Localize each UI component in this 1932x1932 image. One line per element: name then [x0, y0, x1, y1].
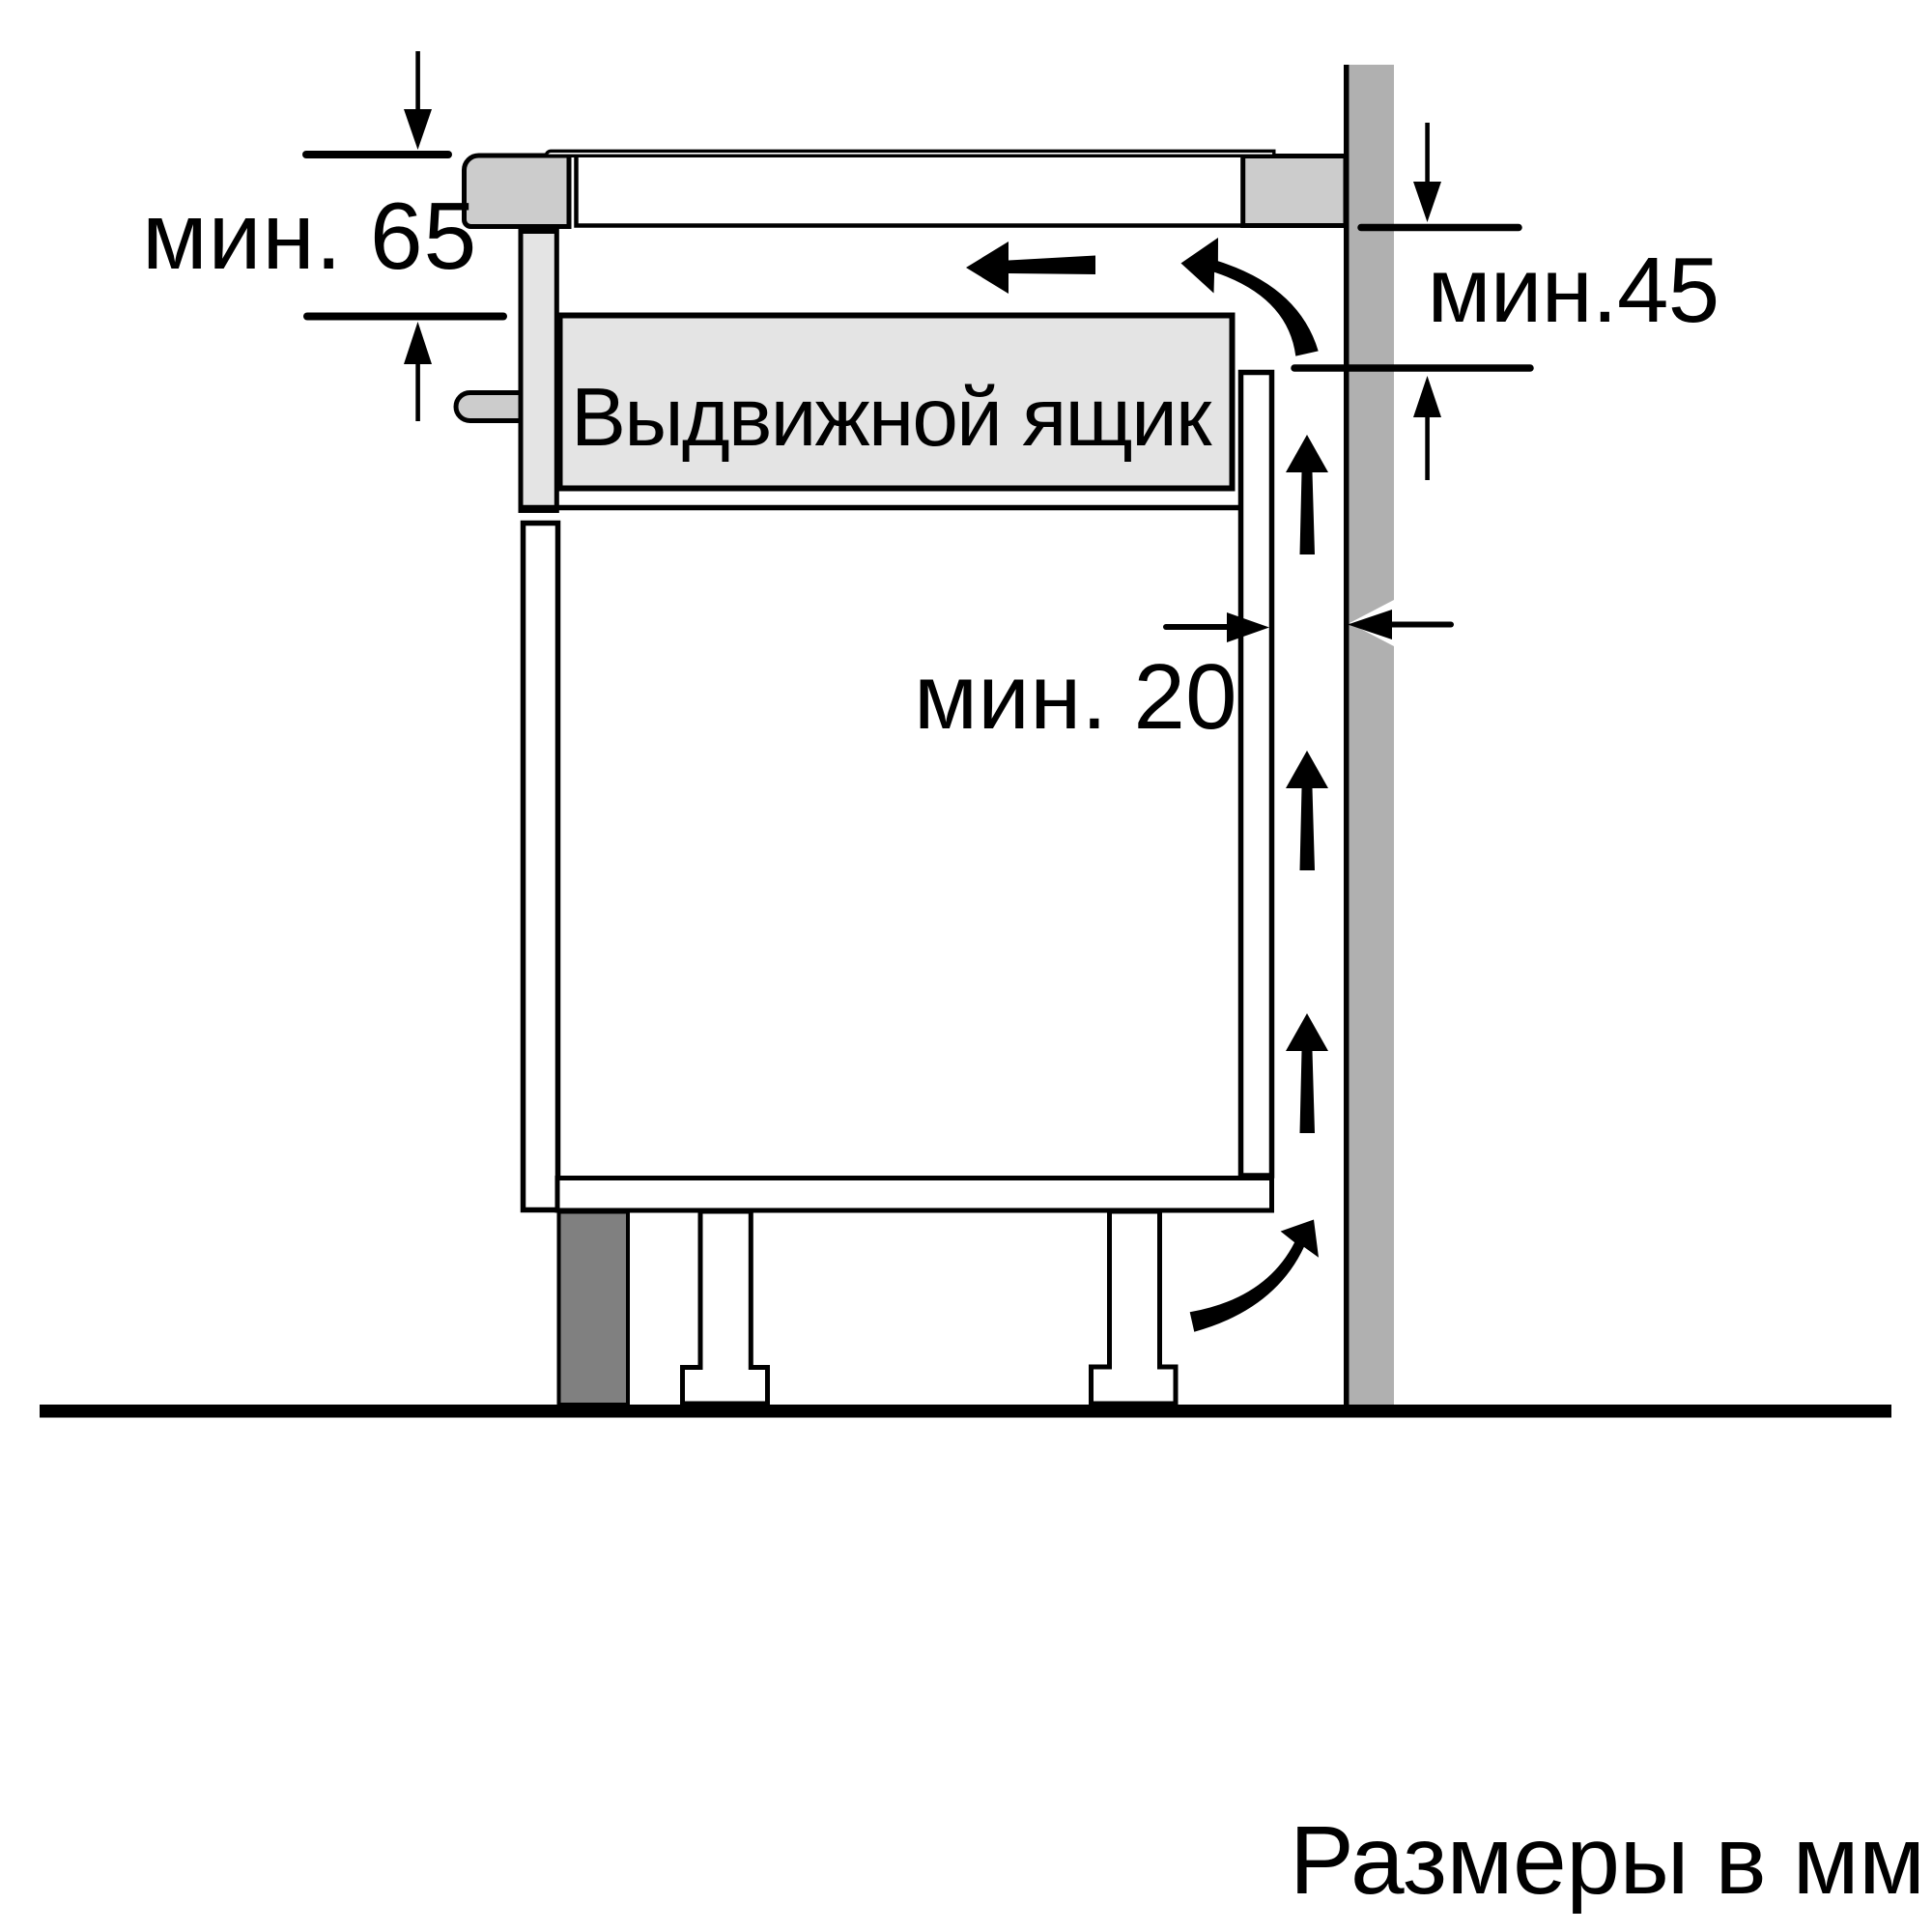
svg-text:мин. 65: мин. 65 — [142, 183, 477, 289]
svg-text:Размеры в мм: Размеры в мм — [1290, 1806, 1925, 1915]
svg-text:мин.45: мин.45 — [1428, 239, 1719, 342]
svg-text:мин. 20: мин. 20 — [914, 645, 1237, 749]
svg-text:Выдвижной ящик: Выдвижной ящик — [571, 372, 1212, 464]
